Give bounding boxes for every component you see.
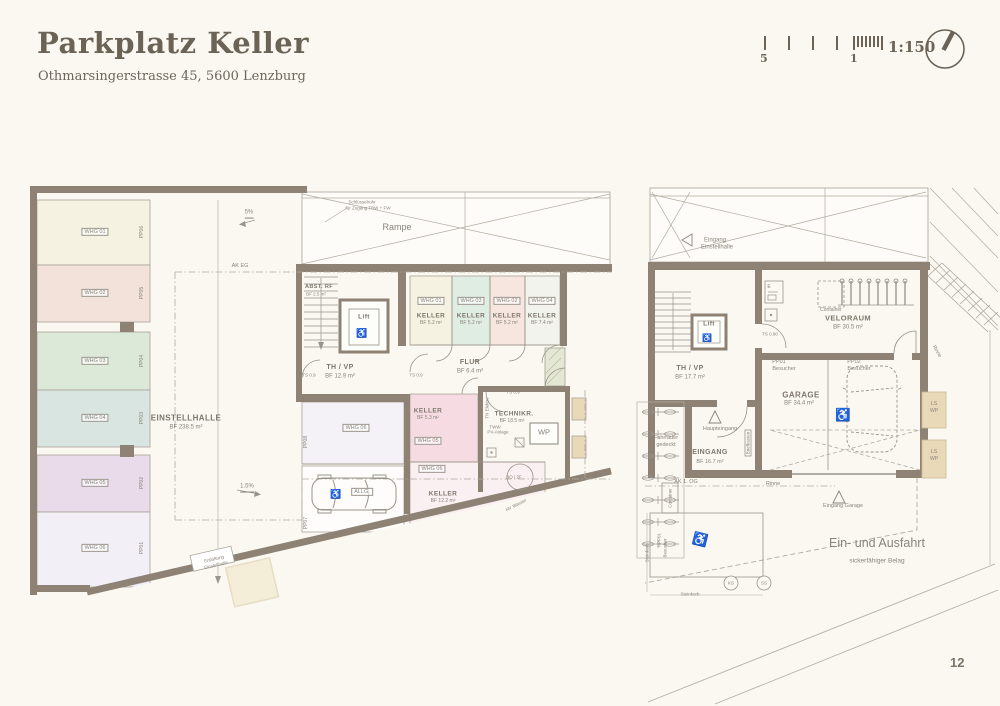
garage-name: GARAGE bbox=[782, 390, 820, 399]
scale-tick bbox=[853, 36, 855, 50]
scale-tick bbox=[873, 36, 875, 47]
stall-label-whg06: WHG 06 bbox=[81, 544, 108, 552]
plan-sheet: Parkplatz Keller Othmarsingerstrasse 45,… bbox=[0, 0, 1000, 706]
ls-wp-label-2b: WP bbox=[930, 457, 938, 463]
pp-label-pp07: PP07 bbox=[304, 517, 310, 529]
wp-label: WP bbox=[538, 429, 550, 438]
flur-name: FLUR bbox=[460, 359, 480, 367]
allg-label: ALLG. bbox=[351, 488, 373, 496]
scale-tick bbox=[861, 36, 863, 47]
pp-label-pp01: PP01 bbox=[140, 542, 146, 554]
bo-label: BO / 2F bbox=[506, 474, 522, 479]
pp-label-pp05: PP05 bbox=[140, 287, 146, 299]
ls-wp-label-1a: LS bbox=[931, 402, 937, 408]
slope-mid: 1.5% bbox=[240, 484, 254, 493]
scale-tick bbox=[857, 36, 859, 47]
steinkorb-label-side: Steinkorb bbox=[644, 543, 649, 562]
ak-og-label: AK 1. OG bbox=[674, 479, 698, 485]
ramp-note-2: für Zugang TBW + FW bbox=[345, 205, 390, 210]
pp-label-pp03: PP03 bbox=[140, 412, 146, 424]
eingang-area: BF 16.7 m² bbox=[696, 459, 723, 465]
pp-label-pp06: PP06 bbox=[140, 226, 146, 238]
ausfahrt-label: Ein- und Ausfahrt bbox=[829, 536, 925, 550]
thvp-area: BF 12.9 m² bbox=[325, 374, 355, 381]
garage-area: BF 34.4 m² bbox=[784, 401, 814, 408]
pp01-sub: Besucher bbox=[772, 366, 795, 372]
abst-name: ABST. RF bbox=[305, 284, 333, 290]
stall-label-whg04: WHG 04 bbox=[81, 414, 108, 422]
pp-label-pp08: PP08 bbox=[304, 436, 310, 448]
keller3-name: KELLER bbox=[493, 312, 521, 319]
scale-label-5: 5 bbox=[760, 52, 768, 65]
ss-label: SS bbox=[761, 580, 767, 585]
steinkorb-label-bottom: Steinkorb bbox=[680, 591, 699, 596]
keller5-whg: WHG 05 bbox=[414, 437, 441, 445]
scale-label-1: 1 bbox=[850, 52, 858, 65]
left-plan-drawing bbox=[25, 180, 620, 610]
pp01-label: PP01 bbox=[772, 359, 785, 365]
container-label-side: Container bbox=[667, 488, 672, 508]
thvp-area: BF 17.7 m² bbox=[675, 375, 705, 382]
belag-label: sickerfähiger Belag bbox=[849, 557, 904, 564]
ramp-note-1: Schlüsselrohr bbox=[348, 199, 375, 204]
scale-tick bbox=[764, 36, 766, 50]
scale-tick bbox=[865, 36, 867, 47]
stall-label-whg01: WHG 01 bbox=[81, 228, 108, 236]
scale-tick bbox=[836, 36, 838, 50]
stall-label-whg05: WHG 05 bbox=[81, 479, 108, 487]
wheelchair-icon: ♿ bbox=[356, 328, 367, 338]
bikes-label-2: gedeckt bbox=[656, 442, 675, 448]
keller5-name: KELLER bbox=[414, 407, 442, 414]
wheelchair-icon: ♿ bbox=[835, 408, 851, 422]
keller2-whg: WHG 03 bbox=[457, 297, 484, 305]
eingang-name: EINGANG bbox=[692, 449, 727, 457]
entry-ramp-label-1: Eingang bbox=[704, 238, 726, 245]
app01-label: APP01 bbox=[656, 533, 661, 547]
keller12-name: KELLER bbox=[429, 490, 457, 497]
ks-label: KS bbox=[728, 580, 734, 585]
keller5-area: BF 5.3 m² bbox=[417, 416, 439, 422]
wheelchair-icon: ♿ bbox=[330, 489, 341, 499]
ramp-label: Rampe bbox=[382, 222, 411, 232]
pp02-sub: Besucher bbox=[847, 366, 870, 372]
abst-area: BF 2.5 m² bbox=[306, 291, 326, 296]
page-title: Parkplatz Keller bbox=[37, 26, 309, 60]
door-tag: TS 0.9 bbox=[302, 372, 315, 377]
keller3-area: BF 5.2 m² bbox=[496, 321, 518, 327]
stall-label-whg02: WHG 02 bbox=[81, 289, 108, 297]
pp-label-pp04: PP04 bbox=[140, 355, 146, 367]
flur-area: BF 6.4 m² bbox=[457, 369, 483, 376]
keller1-area: BF 5.2 m² bbox=[420, 321, 442, 327]
keller1-whg: WHG 01 bbox=[417, 297, 444, 305]
entry-ramp-label-2: Einstellhalle bbox=[701, 245, 733, 252]
door-tag: TS 0.90 bbox=[762, 331, 778, 336]
stall-label-whg03: WHG 03 bbox=[81, 357, 108, 365]
door-tag: TS 0.9 bbox=[409, 372, 422, 377]
scale-tick bbox=[881, 36, 883, 50]
pp02-label: PP02 bbox=[847, 359, 860, 365]
elektro-box-label: E bbox=[767, 285, 770, 291]
thvp-name: TH / VP bbox=[676, 365, 703, 373]
technik-name: TECHNIKR. bbox=[495, 410, 534, 417]
scale-tick bbox=[877, 36, 879, 47]
mid-stall-whg: WHG 06 bbox=[342, 424, 369, 432]
door-tag: TS 0.9 bbox=[506, 389, 519, 394]
veloraum-name: VELORAUM bbox=[825, 315, 871, 324]
page-subtitle: Othmarsingerstrasse 45, 5600 Lenzburg bbox=[38, 69, 306, 84]
keller4-name: KELLER bbox=[528, 312, 556, 319]
bikes-label-1: Fahrräder bbox=[654, 435, 678, 441]
wheelchair-icon: ♿ bbox=[702, 333, 712, 342]
briefkasten-label: Briefkasten bbox=[745, 432, 750, 455]
elektro-label: TN Elektro bbox=[484, 397, 489, 418]
pv-label-2: PV-Anlage bbox=[487, 429, 508, 434]
keller2-area: BF 5.2 m² bbox=[460, 321, 482, 327]
north-arrow-icon bbox=[922, 26, 968, 72]
keller2-name: KELLER bbox=[457, 312, 485, 319]
scale-tick bbox=[788, 36, 790, 50]
keller12-whg: WHG 06 bbox=[418, 465, 445, 473]
lift-label: Lift bbox=[703, 320, 715, 327]
keller12-area: BF 12.2 m² bbox=[431, 499, 456, 505]
app01-sub: Besucher bbox=[662, 538, 667, 557]
thvp-name: TH / VP bbox=[326, 364, 353, 372]
haupteingang-label: Haupteingang bbox=[703, 426, 737, 432]
ls-wp-label-2a: LS bbox=[931, 450, 937, 456]
pp-label-pp02: PP02 bbox=[140, 477, 146, 489]
eingang-garage-label: Eingang Garage bbox=[823, 503, 863, 509]
scale-tick bbox=[869, 36, 871, 47]
keller3-whg: WHG 02 bbox=[493, 297, 520, 305]
right-plan-drawing bbox=[630, 180, 1000, 706]
technik-area: BF 18.5 m² bbox=[500, 419, 525, 425]
scale-tick bbox=[812, 36, 814, 50]
slope-top: 5% bbox=[245, 210, 254, 219]
rinne-label-bottom: Rinne bbox=[766, 481, 780, 487]
keller1-name: KELLER bbox=[417, 312, 445, 319]
veloraum-area: BF 30.5 m² bbox=[833, 325, 863, 332]
hall-name: EINSTELLHALLE bbox=[151, 413, 222, 422]
keller4-whg: WHG 04 bbox=[528, 297, 555, 305]
hall-area: BF 238.5 m² bbox=[169, 425, 202, 432]
ak-eg-label: AK EG bbox=[232, 263, 249, 269]
ls-wp-label-1b: WP bbox=[930, 409, 938, 415]
keller4-area: BF 7.4 m² bbox=[531, 321, 553, 327]
scale-bar: 5 1 bbox=[760, 36, 890, 66]
lift-label: Lift bbox=[358, 313, 370, 320]
